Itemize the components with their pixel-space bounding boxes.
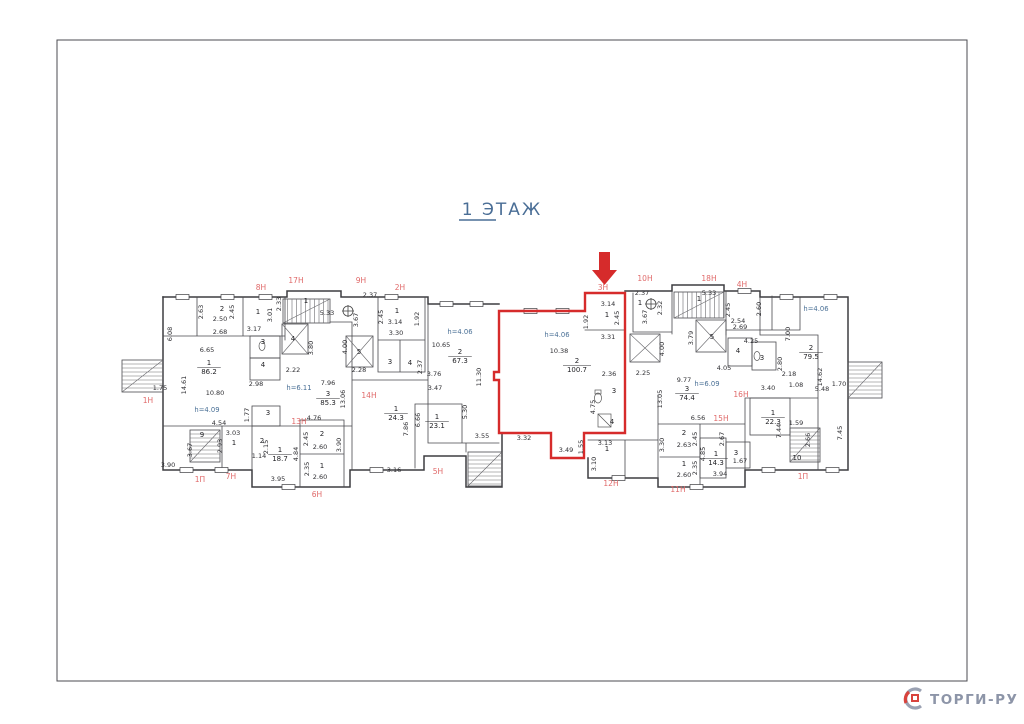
dimension-label: 3.90 [335,438,343,452]
dimension-label: 3.67 [352,313,360,327]
dimension-label: 5.33 [320,309,334,317]
room-area: 86.2 [201,368,217,376]
dimension-label: 1.70 [832,380,846,388]
room-number: 4 [610,418,615,426]
dimension-label: 2.18 [782,370,796,378]
dimension-label: 3.67 [641,310,649,324]
dimension-label: 2.67 [718,432,726,446]
dimension-label: 3.40 [761,384,775,392]
room-number: 1 [278,446,282,454]
dimension-label: 1.92 [413,312,421,326]
room-area: 23.1 [429,422,445,430]
dimension-label: 3.76 [427,370,441,378]
dimension-label: 3.03 [226,429,240,437]
dimension-label: 3.01 [266,308,274,322]
room-number: 3 [760,354,764,362]
dimension-label: 7.00 [784,327,792,341]
dimension-label: 3.94 [713,470,727,478]
dimension-label: 6.08 [166,327,174,341]
unit-label: 6Н [312,490,322,499]
torgi-logo-icon [905,689,921,708]
dimension-label: 2.45 [302,432,310,446]
unit-label: 9Н [356,276,366,285]
dimension-label: 10.65 [432,341,451,349]
unit-label: 11Н [670,485,685,494]
dimension-label: 3.10 [590,457,598,471]
room-number: 1 [771,409,775,417]
room-number: 4 [261,361,266,369]
unit-label: 12Н [603,479,618,488]
dimension-label: 2.28 [352,366,366,374]
room-area: 24.3 [388,414,404,422]
dimension-label: 7.44 [775,424,783,438]
dimension-label: 2.37 [416,360,424,374]
dimension-label: 2.69 [733,323,747,331]
room-number: 1 [304,297,308,305]
room-number: 10 [793,454,802,462]
dimension-label: 13.05 [656,390,664,409]
dimension-label: 2.63 [197,305,205,319]
floor-plan-svg: 1 ЭТАЖ [0,0,1024,724]
room-number: 3 [612,387,616,395]
dimension-label: 3.49 [559,446,573,454]
room-number: 4 [408,359,413,367]
dimension-label: 3.55 [475,432,489,440]
dimension-label: 3.47 [428,384,442,392]
page-border [57,40,967,681]
ceiling-height-label: h=4.06 [803,305,828,313]
dimension-label: 2.50 [213,315,227,323]
dimension-label: 1.59 [789,419,803,427]
dimension-label: 2.25 [636,369,650,377]
dimension-label: 2.22 [286,366,300,374]
ceiling-height-label: h=4.09 [194,406,219,414]
room-number: 1 [435,413,439,421]
staircase-icon [468,452,502,486]
room-area: 14.3 [708,459,724,467]
room-number: 1 [394,405,398,413]
room-number: 2 [809,344,813,352]
room-number: 4 [291,335,296,343]
dimension-label: 2.45 [613,311,621,325]
dimension-label: 2.35 [691,461,699,475]
dimension-label: 2.37 [363,291,377,299]
ceiling-height-label: h=6.09 [694,380,719,388]
dimension-label: 2.66 [804,433,812,447]
ceiling-height-label: h=4.06 [544,331,569,339]
room-number: 1 [256,308,260,316]
dimension-label: 7.86 [402,422,410,436]
watermark-text: ТОРГИ-РУ [930,692,1018,708]
unit-label: 4Н [737,280,747,289]
dimension-label: 3.79 [687,331,695,345]
room-number: 2 [320,430,324,438]
dimension-label: 2.98 [249,380,263,388]
room-number: 3 [326,390,330,398]
room-number: 3 [261,338,265,346]
dimension-label: 2.45 [724,303,732,317]
highlight-arrow-icon [592,252,617,285]
dimension-label: 1.92 [582,315,590,329]
dimension-label: 3.14 [601,300,615,308]
unit-label: 1П [798,472,808,481]
dimension-label: 2.32 [656,301,664,315]
dimension-label: 2.60 [677,471,691,479]
dimension-label: 2.45 [228,305,236,319]
room-number: 2 [458,348,462,356]
dimension-label: 7.45 [836,426,844,440]
dimension-label: 2.45 [377,310,385,324]
unit-label: 18Н [701,274,716,283]
dimension-label: 3.13 [598,439,612,447]
dimension-label: 3.30 [658,438,666,452]
room-area: 67.3 [452,357,468,365]
unit-label: 15Н [713,414,728,423]
room-number: 4 [736,347,741,355]
room-number: 1 [682,460,686,468]
room-number: 1 [395,307,399,315]
watermark: ТОРГИ-РУ [905,689,1018,708]
dimension-label: 11.30 [475,368,483,387]
room-number: 2 [575,357,579,365]
room-number: 9 [200,431,204,439]
dimension-label: 3.32 [517,434,531,442]
room-area: 100.7 [567,366,587,374]
dimension-label: 14.61 [180,376,188,395]
dimension-label: 5.30 [461,405,469,419]
room-number: 3 [266,409,270,417]
room-number: 3 [734,449,738,457]
room-number: 3 [388,358,392,366]
unit-label: 16Н [733,390,748,399]
unit-label: 8Н [256,283,266,292]
dimension-label: 4.00 [341,340,349,354]
dimension-label: 4.00 [658,342,666,356]
room-area: 79.5 [803,353,819,361]
dimension-label: 10.38 [550,347,569,355]
dimension-label: 3.14 [388,318,402,326]
floor-title: 1 ЭТАЖ [459,200,542,220]
room-number: 1 [320,462,324,470]
dimension-label: 5.48 [815,385,829,393]
unit-label: 13Н [291,417,306,426]
dimension-label: 7.96 [321,379,335,387]
unit-label: 5Н [433,467,443,476]
room-number: 1 [605,311,609,319]
room-number: 3 [685,385,689,393]
dimension-label: 1.75 [153,384,167,392]
dimension-label: 2.60 [755,302,763,316]
elevator-icon [630,334,660,362]
dimension-label: 4.84 [292,447,300,461]
room-number: 1 [638,299,642,307]
dimension-label: 3.95 [271,475,285,483]
dimension-label: 4.05 [717,364,731,372]
dimension-label: 3.67 [186,443,194,457]
dimension-label: 2.36 [602,370,616,378]
dimension-label: 2.60 [313,473,327,481]
dimension-label: 2.37 [635,289,649,297]
room-number: 1 [697,295,701,303]
dimension-label: 2.45 [691,432,699,446]
unit-label: 3Н [598,283,608,292]
staircase-icon [848,362,882,398]
dimension-label: 4.54 [212,419,226,427]
dimension-label: 4.85 [699,447,707,461]
unit-label: 14Н [361,391,376,400]
dimension-label: 13.06 [339,390,347,409]
dimension-label: 4.25 [744,337,758,345]
room-number: 1 [714,450,718,458]
dimension-label: 14.62 [816,368,824,387]
ceiling-height-label: h=4.06 [447,328,472,336]
dimension-label: 3.16 [387,466,401,474]
dimension-label: 6.66 [414,413,422,427]
dimension-label: 3.17 [247,325,261,333]
room-area: 74.4 [679,394,695,402]
dimension-label: 2.68 [213,328,227,336]
room-number: 1 [207,359,211,367]
room-number: 2 [682,429,686,437]
dimension-label: 6.56 [691,414,705,422]
unit-label: 2Н [395,283,405,292]
unit-label: 10Н [637,274,652,283]
dimension-label: 1.08 [789,381,803,389]
unit-label: 1Н [143,396,153,405]
ceiling-height-label: h=6.11 [286,384,311,392]
dimension-label: 10.80 [206,389,225,397]
room-number: 5 [357,348,361,356]
dimension-label: 2.63 [677,441,691,449]
dimension-label: 2.35 [303,462,311,476]
room-area: 85.3 [320,399,336,407]
page-title: 1 ЭТАЖ [462,200,542,220]
unit-label: 7Н [226,472,236,481]
dimension-label: 3.90 [161,461,175,469]
dimension-label: 4.76 [307,414,321,422]
dimension-label: 1.14 [252,452,266,460]
plan-labels: 8Н17Н9Н2Н3Н10Н18Н4Н1Н14Н13Н5Н6Н7Н1П15Н16… [143,274,846,499]
dimension-label: 3.80 [307,341,315,355]
scanned-floor-plan-page: 1 ЭТАЖ [0,0,1024,724]
dimension-label: 1.55 [577,440,585,454]
dimension-label: 4.75 [589,400,597,414]
dimension-label: 2.93 [216,439,224,453]
dimension-label: 3.30 [389,329,403,337]
dimension-label: 6.65 [200,346,214,354]
room-number: 1 [232,439,236,447]
dimension-label: 5.33 [702,289,716,297]
room-area: 18.7 [272,455,288,463]
unit-label: 1П [195,475,205,484]
dimension-label: 9.77 [677,376,691,384]
room-number: 2 [220,305,224,313]
unit-label: 17Н [288,276,303,285]
dimension-label: 3.31 [601,333,615,341]
dimension-label: 2.33 [275,297,283,311]
dimension-label: 2.60 [313,443,327,451]
room-number: 5 [710,333,714,341]
dimension-label: 1.77 [243,408,251,422]
dimension-label: 1.67 [733,457,747,465]
